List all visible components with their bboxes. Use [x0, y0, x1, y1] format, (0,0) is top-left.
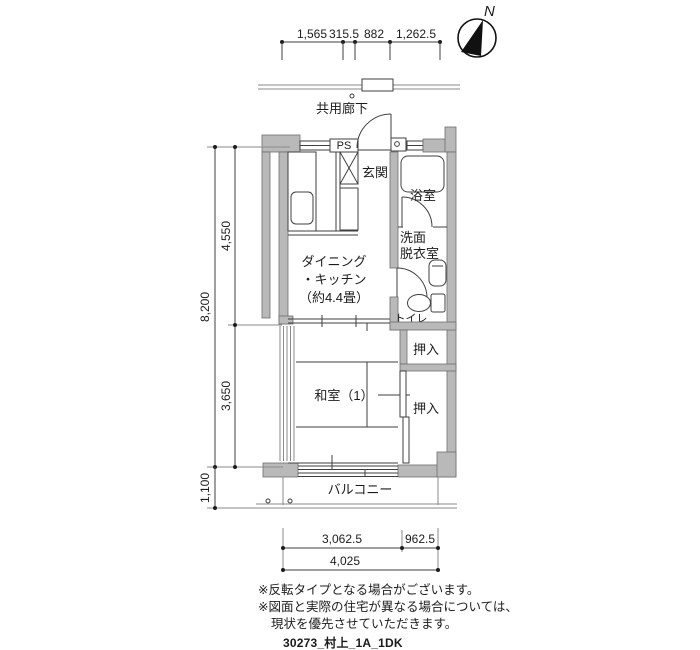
- pipe-shaft-label: PS: [337, 140, 352, 152]
- wall-closet-upper-left: [400, 330, 407, 364]
- dim-left-upper: 4,550: [219, 221, 233, 251]
- floor-plan-drawing: 1,565 315.5 882 1,262.5 N 共用廊下 P: [0, 0, 700, 650]
- balcony-sliding-door: [288, 463, 398, 477]
- dk-label-3: （約4.4畳）: [299, 290, 369, 305]
- wall-toilet-bottom: [390, 322, 456, 330]
- dim-top-4: 1,262.5: [396, 27, 436, 41]
- entrance-door: [357, 114, 391, 148]
- toilet-tank: [431, 294, 445, 312]
- closet-fusuma-doors: [400, 371, 409, 463]
- bathtub: [401, 156, 444, 192]
- wall-closet-divider: [400, 364, 456, 371]
- dk-washitsu-partition: [279, 315, 390, 327]
- left-dimension-block: 8,200 4,550 3,650 1,100: [198, 145, 290, 510]
- north-compass: N: [458, 3, 496, 57]
- common-corridor: 共用廊下: [258, 79, 460, 116]
- dim-left-total: 8,200: [198, 292, 212, 322]
- dim-top-3: 882: [364, 27, 384, 41]
- wall-right: [447, 152, 456, 463]
- wall-hall-right: [390, 152, 398, 268]
- japanese-room-label: 和室（1）: [314, 388, 373, 403]
- note-line-1: ※反転タイプとなる場合がございます。: [258, 582, 479, 597]
- shoe-cabinet: [340, 188, 358, 230]
- dk-label-2: ・キッチン: [301, 272, 366, 287]
- toilet-room: トイレ: [390, 294, 456, 330]
- bathroom: 浴室: [398, 156, 447, 227]
- balcony-railing: [256, 499, 457, 508]
- toilet-bowl: [408, 295, 431, 312]
- floor-plan-page: 1,565 315.5 882 1,262.5 N 共用廊下 P: [0, 0, 700, 650]
- drawing-id: 30273_村上_1A_1DK: [283, 635, 403, 650]
- wall-bottom-left-block: [263, 463, 298, 477]
- washroom-label-2: 脱衣室: [400, 246, 439, 261]
- wall-top-right: [423, 139, 447, 152]
- washroom-label-1: 洗面: [400, 230, 426, 245]
- dim-top-1: 1,565: [297, 27, 327, 41]
- wall-top-left-block: [262, 135, 300, 152]
- wall-bottom-right-step: [437, 452, 456, 477]
- dk-label-1: ダイニング: [301, 254, 366, 269]
- wall-left-main: [279, 152, 288, 324]
- dim-top-2: 315.5: [329, 27, 359, 41]
- top-dimension-block: 1,565 315.5 882 1,262.5: [280, 27, 442, 60]
- wall-top-right-step: [445, 127, 456, 152]
- notes-block: ※反転タイプとなる場合がございます。 ※図面と実際の住宅が異なる場合については、…: [258, 582, 518, 650]
- dim-bottom-total: 4,025: [330, 554, 360, 568]
- bathroom-label: 浴室: [410, 188, 436, 203]
- dim-bottom-1: 3,062.5: [322, 532, 362, 546]
- dim-left-lower: 3,650: [219, 381, 233, 411]
- washroom-door: [397, 268, 427, 297]
- dim-left-balcony: 1,100: [198, 473, 212, 503]
- balcony-label: バルコニー: [328, 482, 393, 497]
- note-line-2: ※図面と実際の住宅が異なる場合については、: [258, 599, 518, 614]
- balcony: バルコニー: [256, 477, 457, 508]
- japanese-room: 和室（1）: [280, 323, 410, 463]
- compass-needle: [461, 20, 483, 56]
- top-dimension-line: [280, 40, 442, 60]
- kitchen-sink: [291, 192, 313, 224]
- closet-lower-label: 押入: [413, 401, 439, 416]
- corridor-pillar: [362, 79, 393, 91]
- bottom-dimension-block: 3,062.5 962.5 4,025: [281, 528, 440, 572]
- dim-bottom-2: 962.5: [405, 532, 435, 546]
- wall-left-outer: [262, 152, 270, 318]
- washitsu-window: [280, 326, 294, 461]
- corridor-label: 共用廊下: [316, 101, 368, 116]
- north-label: N: [484, 3, 495, 20]
- washroom: 洗面 脱衣室: [397, 230, 446, 297]
- entrance-label: 玄関: [362, 165, 388, 180]
- washbasin: [429, 260, 446, 286]
- closet-upper-label: 押入: [413, 342, 439, 357]
- dining-kitchen: ダイニング ・キッチン （約4.4畳）: [299, 254, 369, 305]
- note-line-3: 現状を優先させていただきます。: [271, 617, 457, 631]
